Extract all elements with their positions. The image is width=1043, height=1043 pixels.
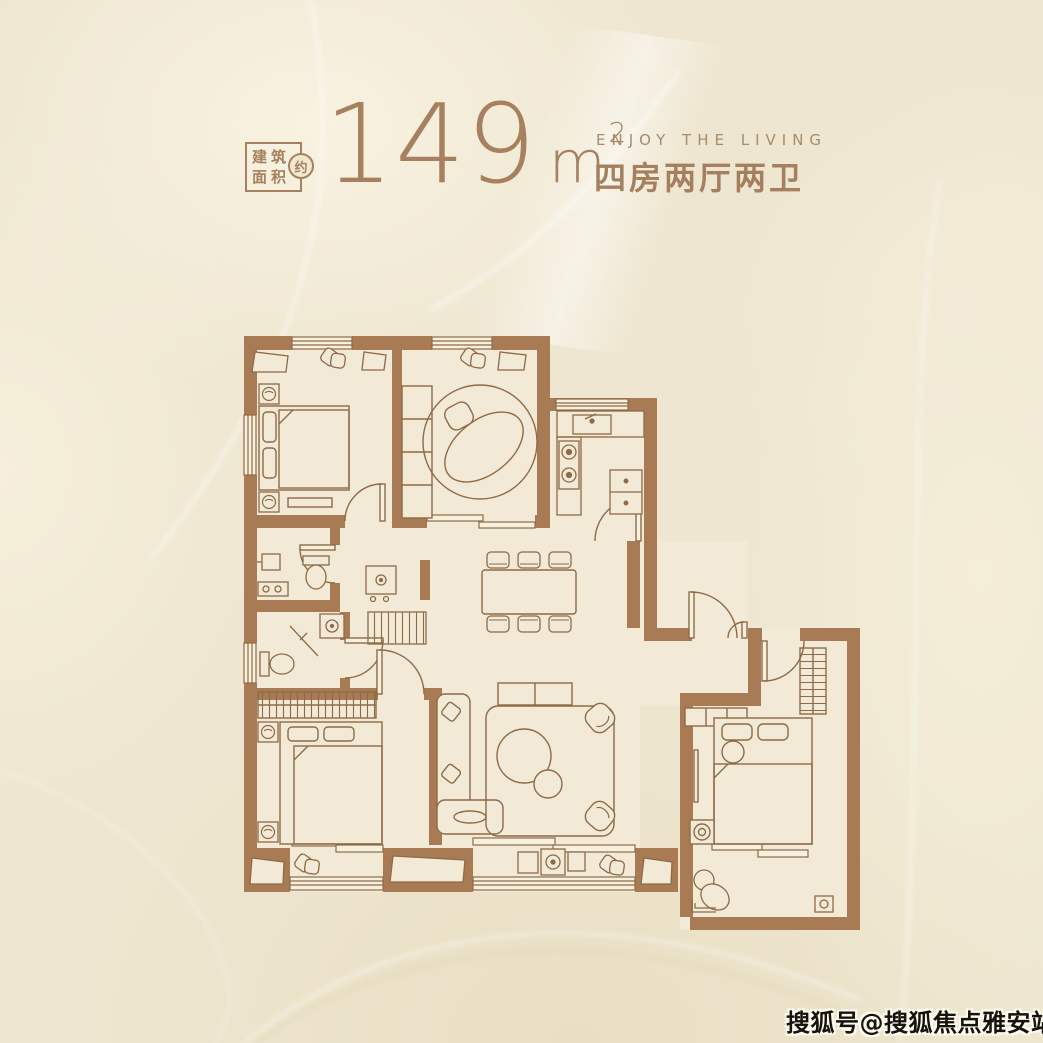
tv-icon bbox=[694, 750, 698, 802]
floor-plan bbox=[0, 0, 1043, 1043]
watermark: 搜狐号@搜狐焦点雅安站 bbox=[786, 1003, 1043, 1038]
floor-drain-icon bbox=[815, 896, 833, 912]
toilet-icon bbox=[260, 652, 269, 676]
balcony bbox=[518, 849, 585, 875]
wardrobe-icon bbox=[368, 612, 426, 644]
toilet-icon bbox=[303, 556, 329, 565]
dining-table-icon bbox=[482, 570, 576, 614]
floorplan-poster: 建筑 面积 约 149 m 2 ENJOY THE LIVING 四房两厅两卫 bbox=[0, 0, 1043, 1043]
side-table-icon bbox=[518, 852, 538, 873]
washbasin-icon bbox=[262, 554, 280, 570]
dining-room bbox=[482, 552, 576, 632]
side-table-icon bbox=[568, 852, 585, 871]
